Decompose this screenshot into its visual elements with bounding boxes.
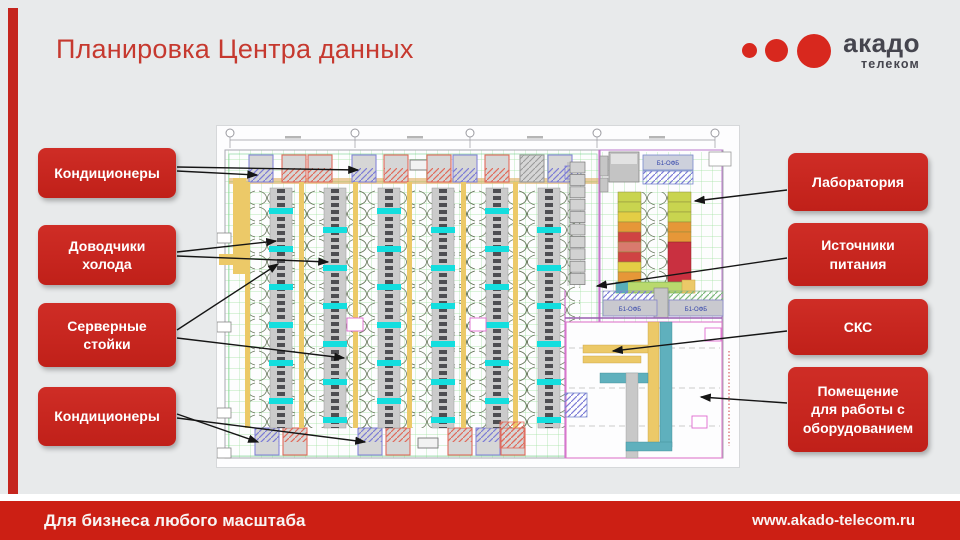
- dimension-line: [226, 129, 719, 148]
- left-cable-trays: [219, 178, 247, 274]
- svg-text:Б1-ОФБ: Б1-ОФБ: [657, 161, 680, 167]
- floor-plan: Б1-ОФБ Б1-ОФБ Б1-ОФБ: [217, 126, 739, 467]
- footer-separator: [0, 494, 960, 501]
- svg-text:Б1-ОФБ: Б1-ОФБ: [685, 307, 708, 313]
- floor-plan-drawing: Б1-ОФБ Б1-ОФБ Б1-ОФБ: [217, 126, 739, 467]
- callout-cold-closers: Доводчики холода: [38, 225, 176, 285]
- server-racks: [245, 182, 580, 428]
- page-title: Планировка Центра данных: [56, 34, 414, 65]
- akado-logo: акадо телеком: [742, 30, 920, 71]
- bottom-conditioner-row: [255, 428, 525, 455]
- footer-url: www.akado-telecom.ru: [752, 512, 915, 529]
- callout-scs: СКС: [788, 299, 928, 355]
- callout-conditioners-top: Кондиционеры: [38, 148, 176, 198]
- callout-conditioners-bottom: Кондиционеры: [38, 387, 176, 446]
- callout-laboratory: Лаборатория: [788, 153, 928, 211]
- callout-power-sources: Источники питания: [788, 223, 928, 286]
- svg-text:Б1-ОФБ: Б1-ОФБ: [619, 307, 642, 313]
- left-accent-stripe: [8, 8, 18, 494]
- footer-tagline: Для бизнеса любого масштаба: [44, 511, 305, 531]
- logo-brand-text: акадо: [843, 30, 920, 56]
- callout-server-racks: Серверные стойки: [38, 303, 176, 367]
- footer-bar: Для бизнеса любого масштаба www.akado-te…: [0, 501, 960, 540]
- logo-sub-text: телеком: [861, 57, 920, 71]
- callout-equipment-room: Помещение для работы с оборудованием: [788, 367, 928, 452]
- logo-dots-icon: [742, 34, 843, 68]
